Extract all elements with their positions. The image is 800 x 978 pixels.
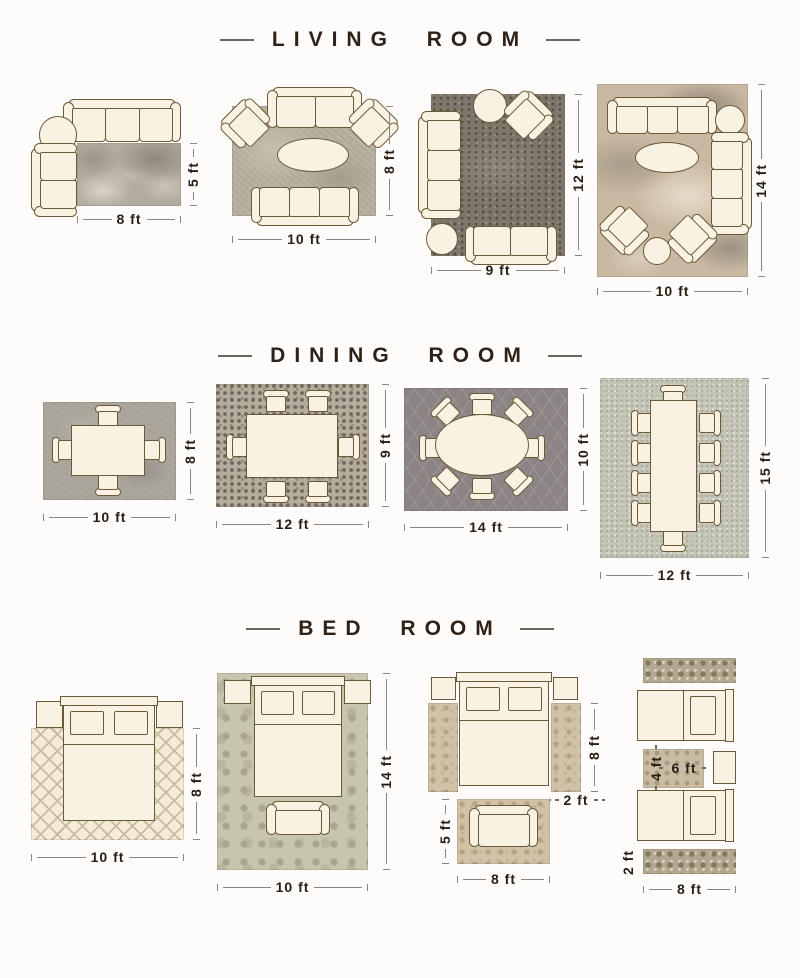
runner-height-dimension: 2 ft <box>620 845 636 878</box>
runner-rug <box>643 849 736 874</box>
rug-guide-infographic: LIVING ROOM 8 ft 5 ft 10 ft 8 ft 9 ft 12… <box>0 0 800 978</box>
twin-bed <box>637 690 732 741</box>
runner-rug <box>643 658 736 683</box>
accent-rug-width-dimension: 6 ft <box>659 760 709 776</box>
dimension-label: 8 ft <box>677 881 702 897</box>
bed-room-diagram-4: 4 ft 6 ft 2 ft 8 ft <box>0 0 800 978</box>
nightstand <box>713 751 736 784</box>
runner-length-dimension: 8 ft <box>643 881 736 897</box>
dimension-label: 6 ft <box>672 760 697 776</box>
dimension-label: 2 ft <box>620 850 636 875</box>
twin-bed <box>637 790 732 841</box>
